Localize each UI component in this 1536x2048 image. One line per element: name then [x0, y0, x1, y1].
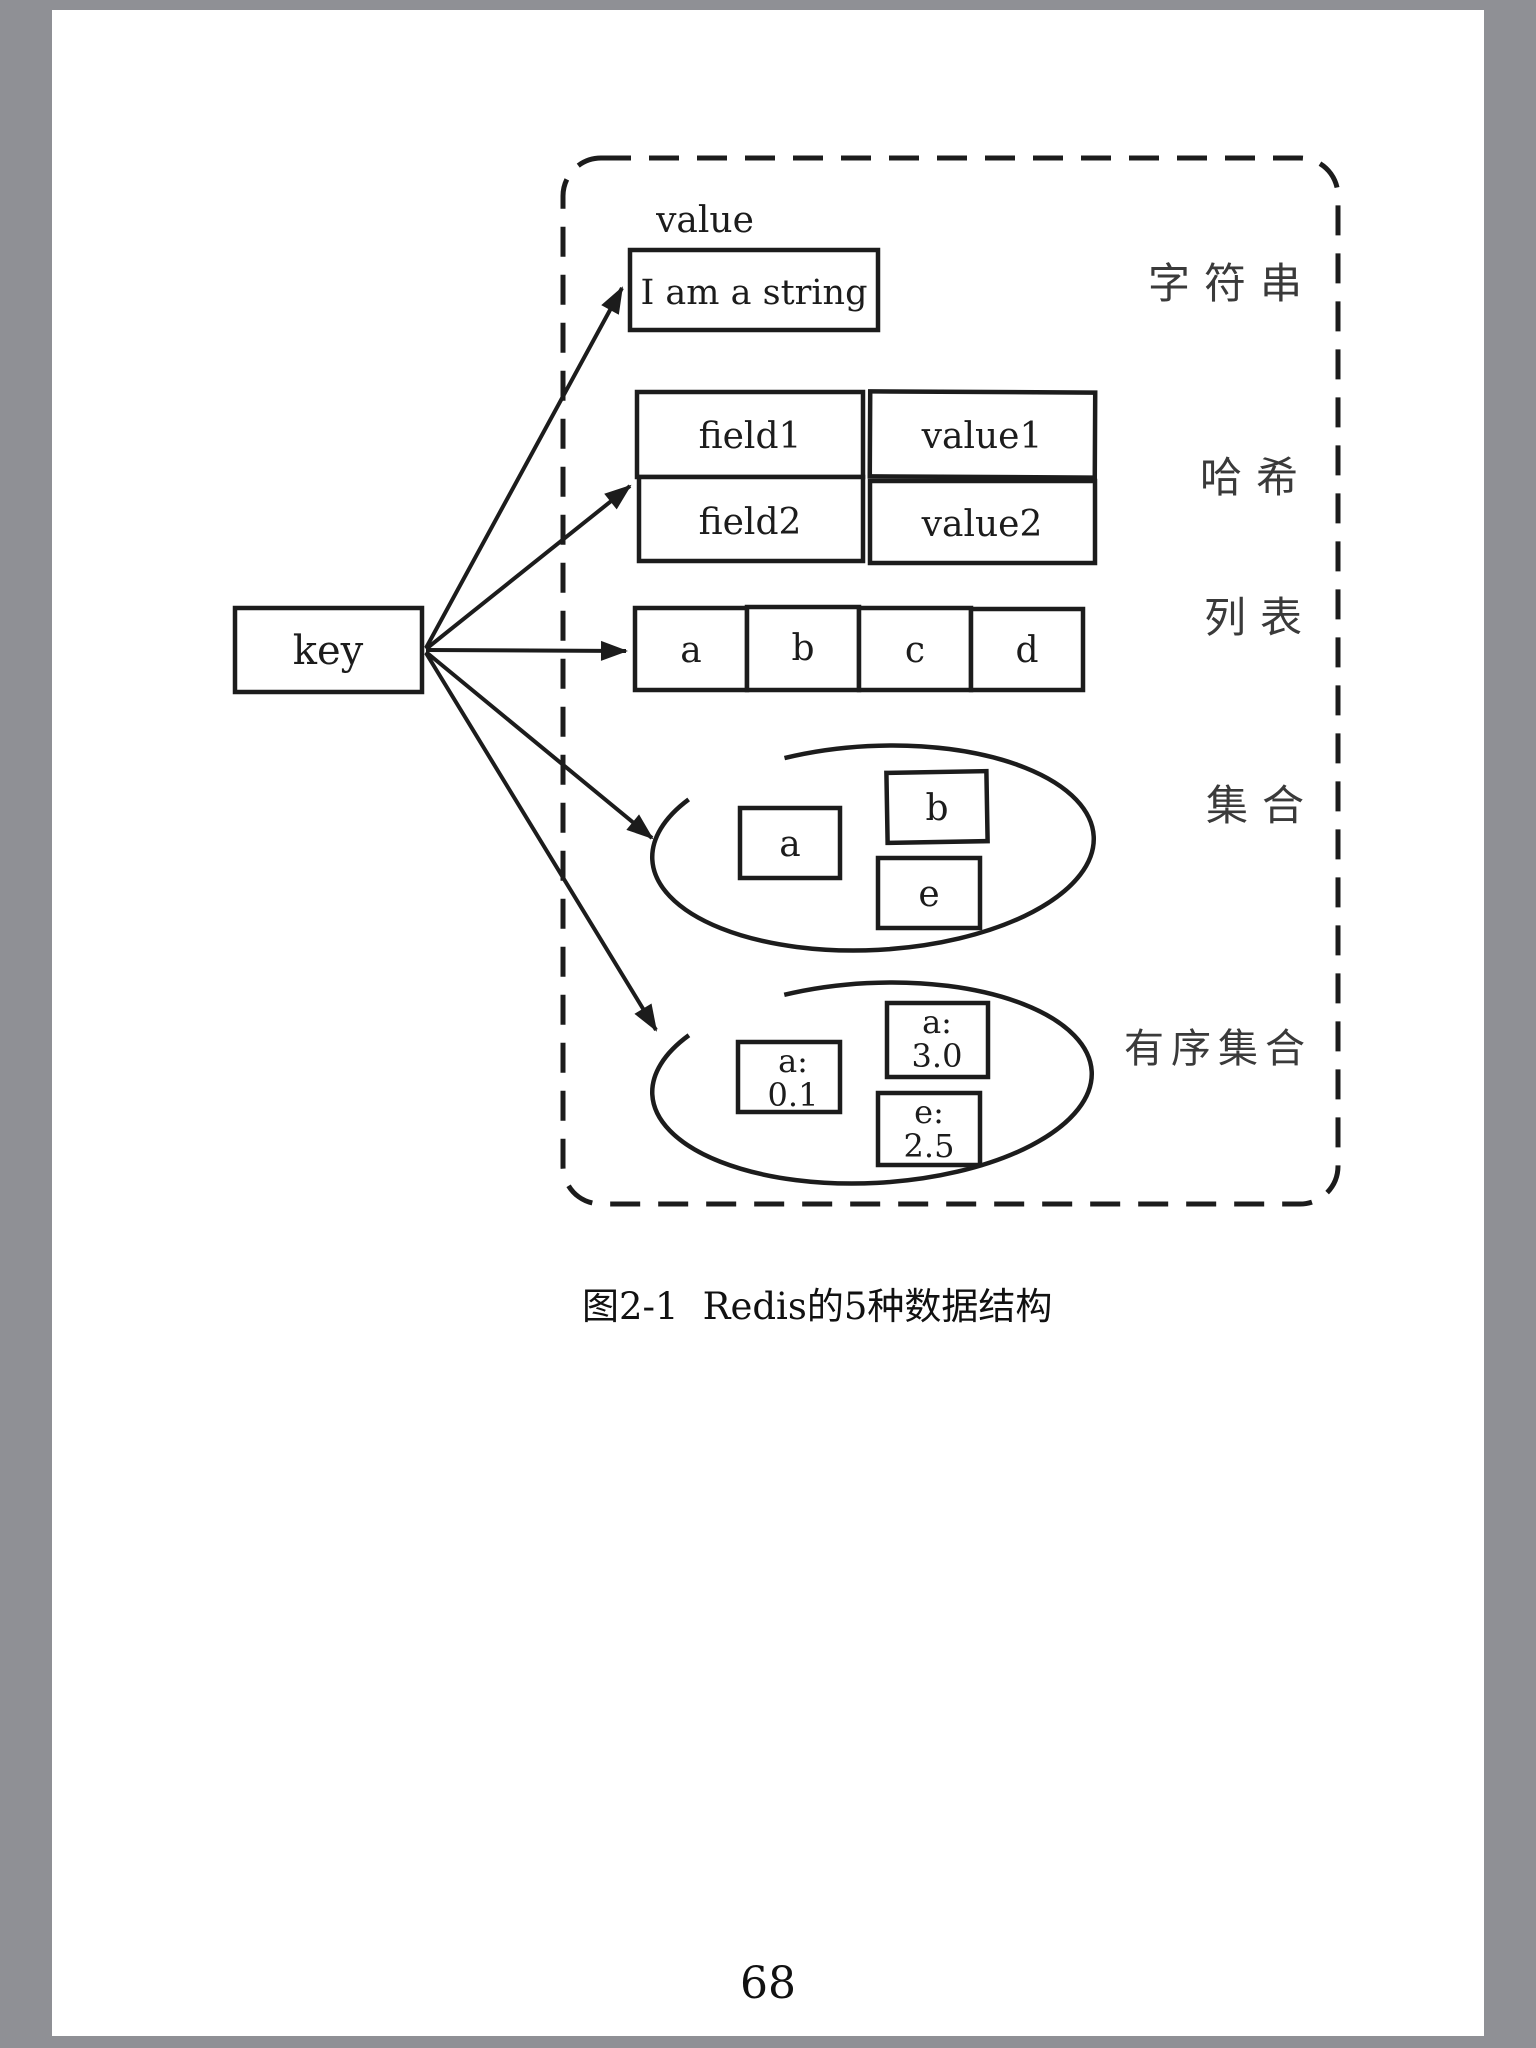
- key-arrows: [426, 288, 656, 1030]
- zset-structure: a: 0.1 a: 3.0 e: 2.5 有序集合: [647, 972, 1312, 1195]
- value-header: value: [655, 200, 754, 241]
- hash-value1: value1: [921, 416, 1043, 457]
- label-zset-type: 有序集合: [1124, 1026, 1312, 1072]
- list-item: d: [1015, 630, 1038, 671]
- arrow-to-string: [426, 288, 622, 648]
- key-label: key: [293, 628, 364, 674]
- string-value: I am a string: [640, 273, 867, 313]
- label-string-type: 字符串: [1148, 259, 1316, 308]
- set-member: e: [918, 874, 939, 915]
- hash-structure: field1 value1 field2 value2 哈希: [637, 391, 1312, 563]
- label-hash-type: 哈希: [1200, 453, 1312, 502]
- arrow-to-zset: [426, 653, 656, 1030]
- zset-score: 3.0: [912, 1037, 963, 1075]
- zset-member: a:: [922, 1003, 952, 1041]
- hash-field1: field1: [699, 416, 802, 457]
- zset-member: a:: [778, 1042, 808, 1080]
- string-structure: value I am a string 字符串: [630, 200, 1316, 330]
- arrow-to-hash: [426, 486, 630, 649]
- list-item: a: [680, 630, 701, 671]
- screen: 图2-1 Redis的5种数据结构 68 key value: [0, 0, 1536, 2048]
- zset-score: 0.1: [768, 1076, 819, 1114]
- set-ellipse: [647, 735, 1099, 962]
- list-item: b: [791, 628, 814, 669]
- label-set-type: 集合: [1206, 781, 1318, 830]
- hash-value2: value2: [921, 504, 1043, 545]
- label-list-type: 列表: [1204, 593, 1316, 642]
- arrow-to-list: [426, 650, 626, 651]
- arrow-to-set: [426, 652, 652, 838]
- zset-score: 2.5: [904, 1127, 955, 1165]
- hash-field2: field2: [699, 502, 802, 543]
- set-member: b: [925, 788, 948, 829]
- set-member: a: [779, 824, 800, 865]
- set-structure: a b e 集合: [647, 735, 1318, 962]
- redis-structures-diagram: key value I am a string 字符串 field1 value…: [0, 0, 1536, 2048]
- zset-member: e:: [914, 1093, 944, 1131]
- list-structure: a b c d 列表: [635, 593, 1316, 690]
- list-item: c: [905, 630, 925, 671]
- key-node: key: [235, 608, 422, 692]
- zset-ellipse: [647, 972, 1097, 1195]
